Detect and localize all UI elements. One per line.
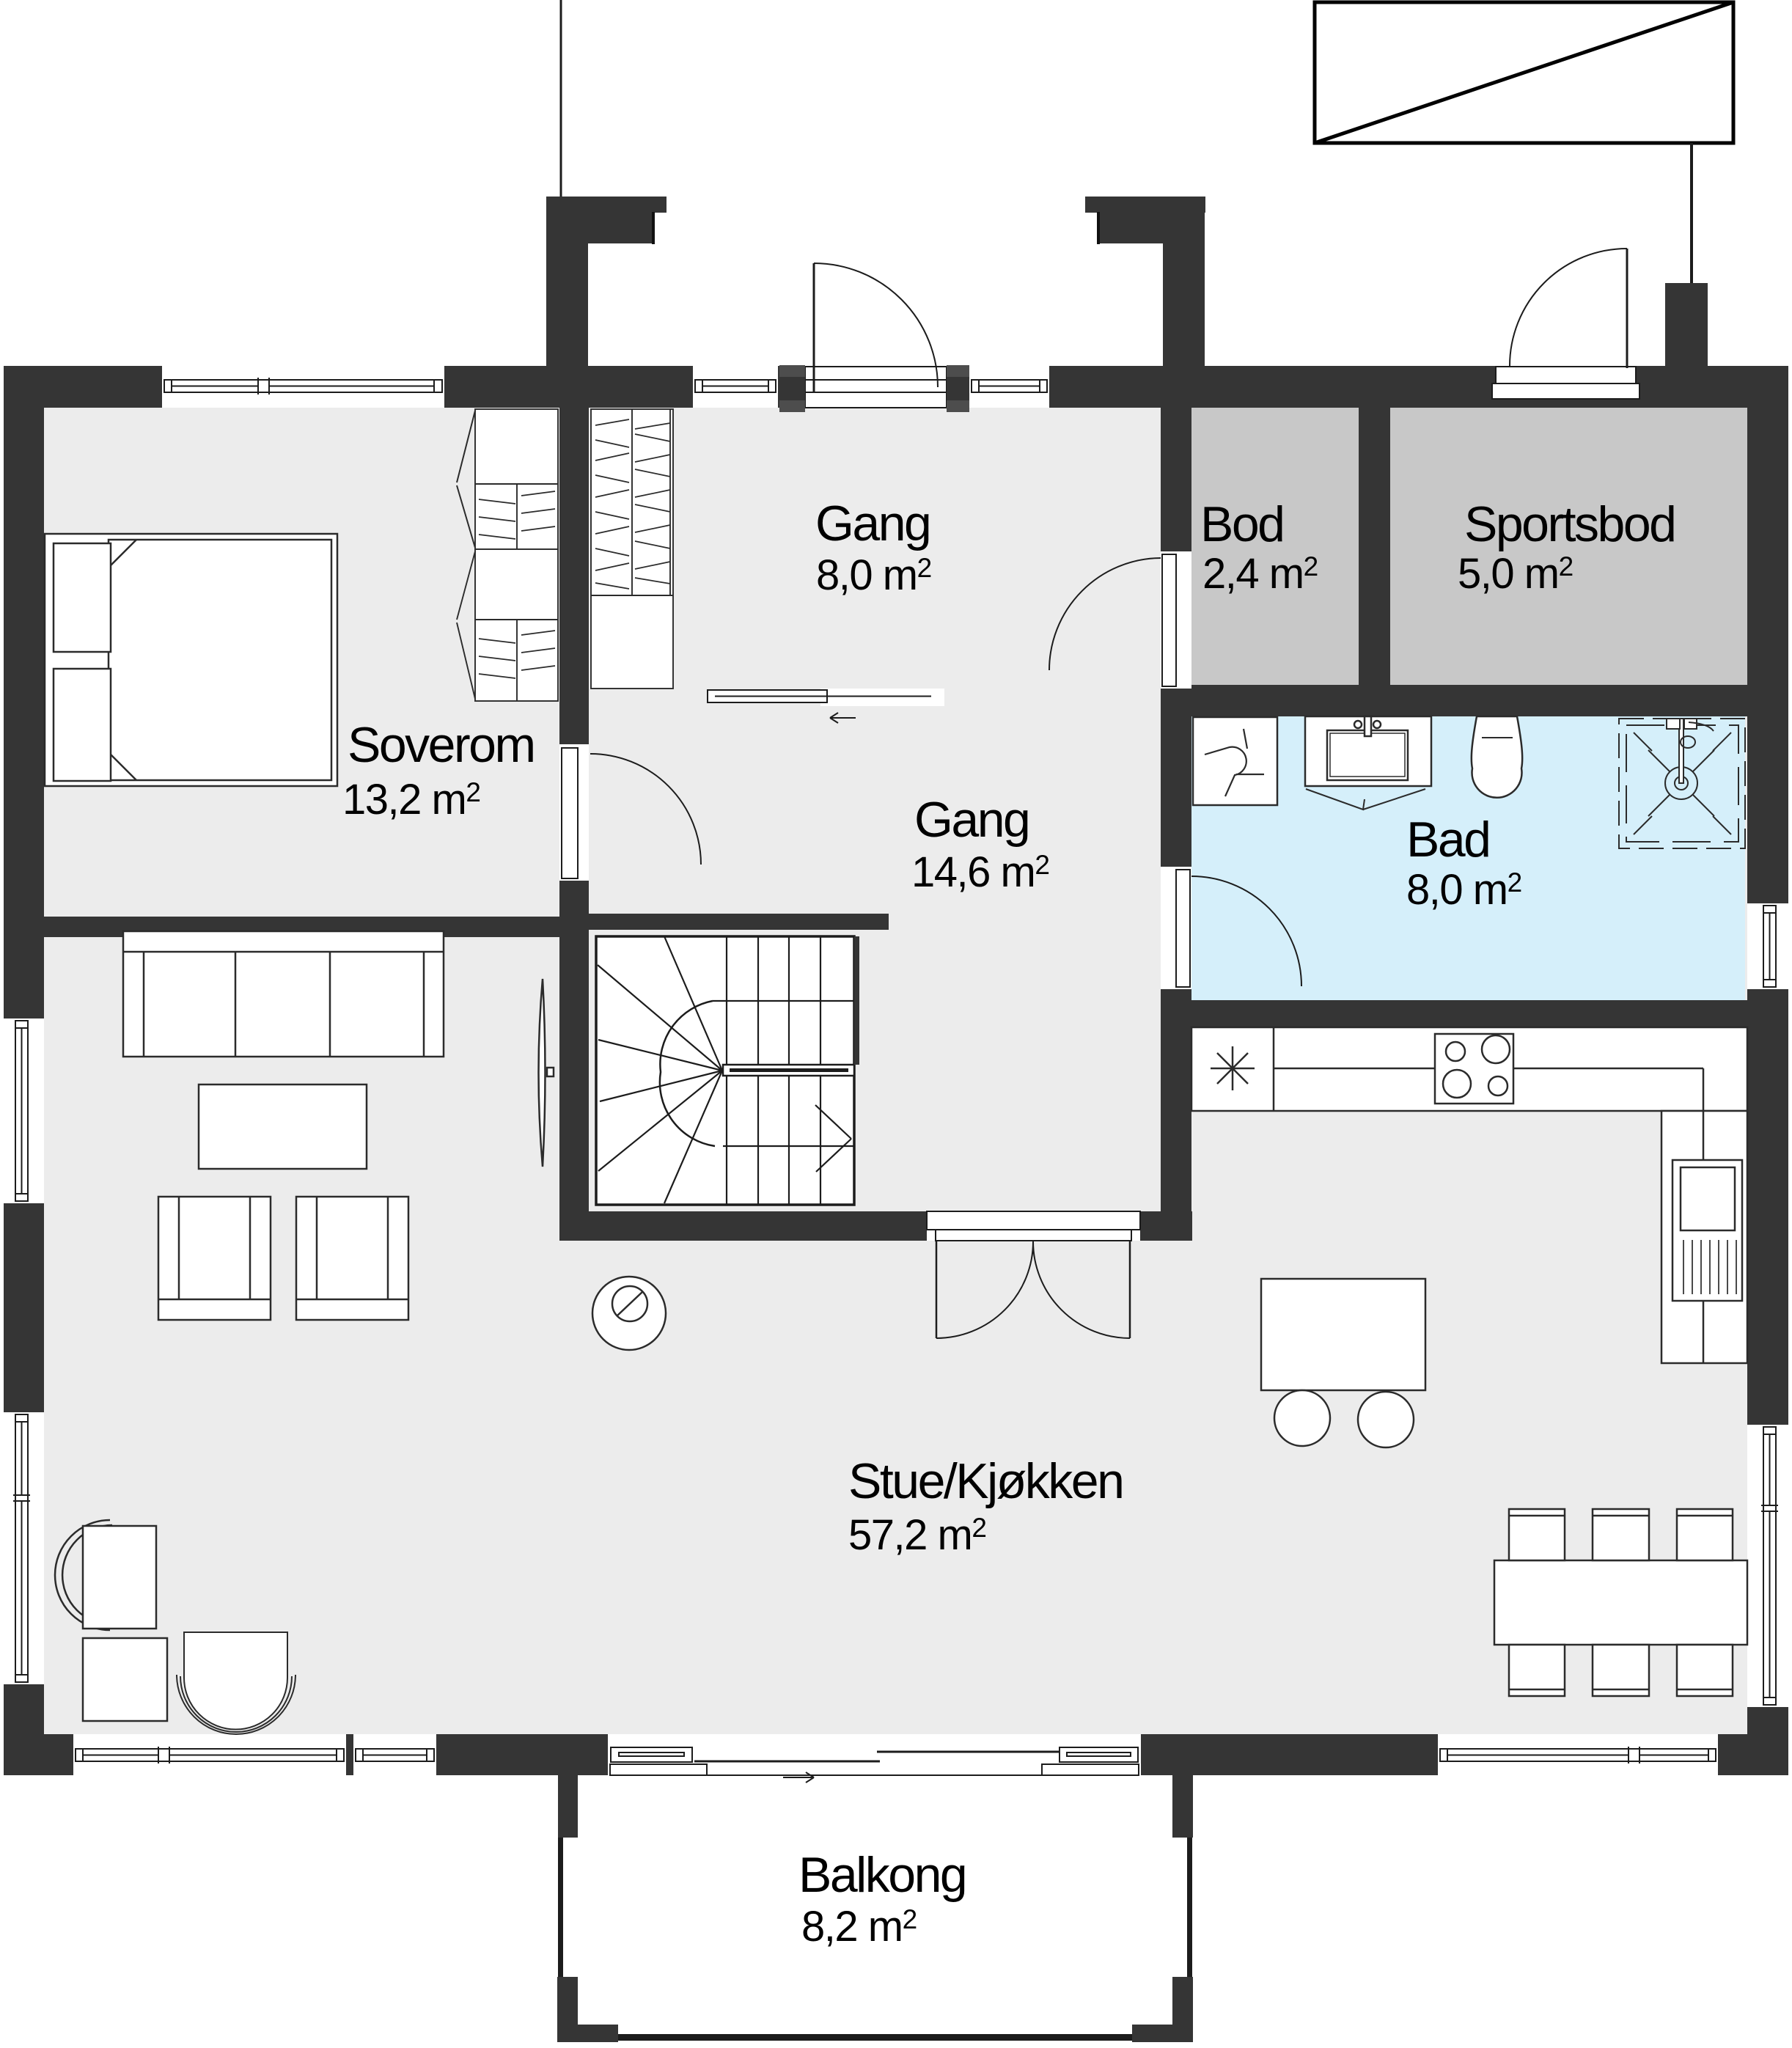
svg-text:Soverom: Soverom <box>348 717 535 773</box>
svg-text:Sportsbod: Sportsbod <box>1464 496 1675 552</box>
svg-text:57,2 m2: 57,2 m2 <box>848 1511 985 1559</box>
svg-text:13,2 m2: 13,2 m2 <box>342 776 480 823</box>
svg-text:Bod: Bod <box>1200 496 1284 552</box>
svg-text:Gang: Gang <box>914 792 1029 848</box>
svg-text:8,0 m2: 8,0 m2 <box>816 551 931 599</box>
svg-text:2,4 m2: 2,4 m2 <box>1202 550 1318 598</box>
svg-text:Stue/Kjøkken: Stue/Kjøkken <box>848 1453 1123 1509</box>
svg-text:Balkong: Balkong <box>798 1847 966 1903</box>
svg-text:8,2 m2: 8,2 m2 <box>801 1903 917 1950</box>
svg-text:Bad: Bad <box>1406 812 1490 867</box>
svg-text:8,0 m2: 8,0 m2 <box>1406 866 1521 914</box>
svg-text:Gang: Gang <box>815 496 930 551</box>
svg-text:14,6 m2: 14,6 m2 <box>911 848 1049 896</box>
svg-text:5,0 m2: 5,0 m2 <box>1458 550 1573 598</box>
